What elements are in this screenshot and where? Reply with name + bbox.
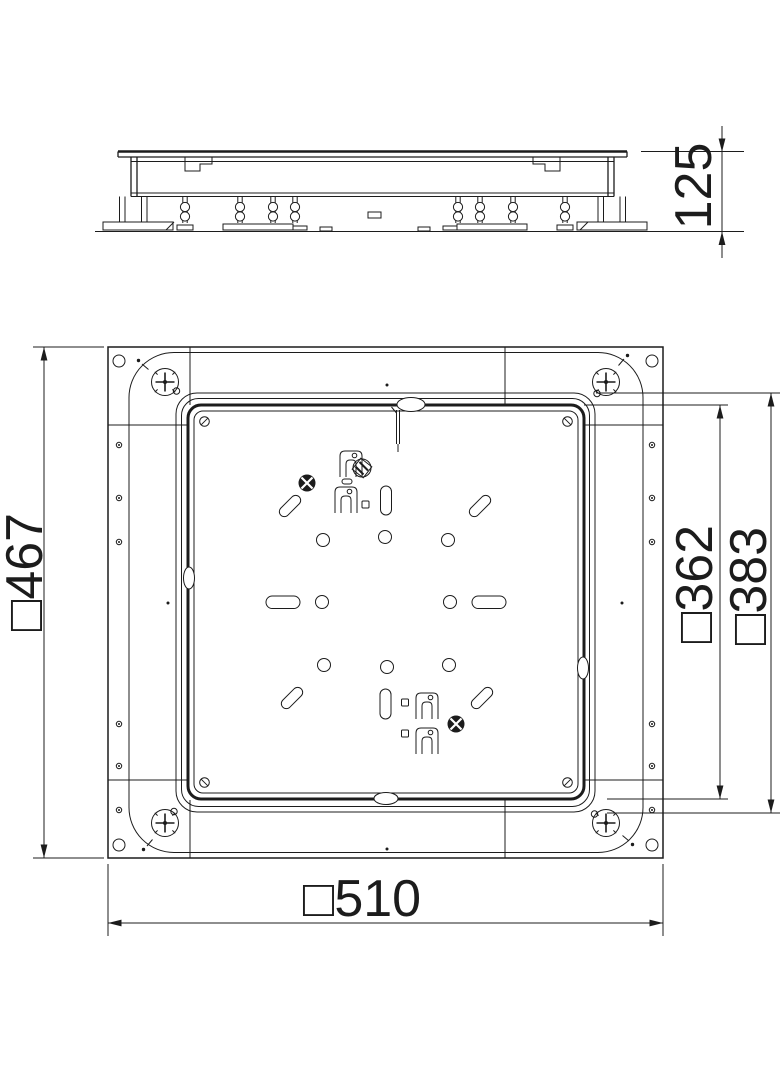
plan-cover-notches xyxy=(184,398,589,805)
dim-label-125: 125 xyxy=(665,143,723,230)
side-view-lid xyxy=(118,152,627,162)
plan-cover-edge xyxy=(188,405,584,799)
side-view-body xyxy=(131,157,614,218)
plan-round-holes xyxy=(316,531,457,674)
plan-corner-holes xyxy=(113,355,658,851)
plan-view xyxy=(108,347,663,858)
plan-frame-screws xyxy=(137,354,634,851)
plan-lower-fitting-cluster xyxy=(380,689,465,754)
plan-horizontal-slots xyxy=(266,596,506,609)
side-view-feet xyxy=(103,222,647,231)
plan-outer-plate xyxy=(108,347,663,858)
plan-trim-inner xyxy=(182,399,590,807)
side-view xyxy=(95,152,660,232)
technical-drawing-page: 125 xyxy=(0,0,784,1066)
plan-upper-fitting-cluster xyxy=(299,451,392,515)
plan-lift-pin xyxy=(392,407,400,452)
plan-reference-dots xyxy=(167,384,624,851)
plan-opening-edge xyxy=(176,393,595,812)
plan-cover-inner xyxy=(194,411,578,793)
plan-frame-joints xyxy=(108,347,663,858)
dim-label-510: □510 xyxy=(303,870,421,928)
dimension-plan-width: □510 xyxy=(108,864,663,936)
dimension-side-height: 125 xyxy=(641,126,744,258)
drawing-canvas: 125 xyxy=(0,0,784,1066)
plan-diagonal-slots xyxy=(277,493,494,710)
dimension-plan-height: □467 xyxy=(0,347,104,858)
dim-label-383: □383 xyxy=(720,527,778,645)
dimension-plan-cover: □362 xyxy=(584,405,728,799)
plan-cover-screws xyxy=(200,417,573,788)
side-view-legs xyxy=(120,197,626,224)
plan-edge-holes xyxy=(116,442,654,812)
dim-label-467: □467 xyxy=(0,513,54,631)
dim-label-362: □362 xyxy=(666,525,724,643)
